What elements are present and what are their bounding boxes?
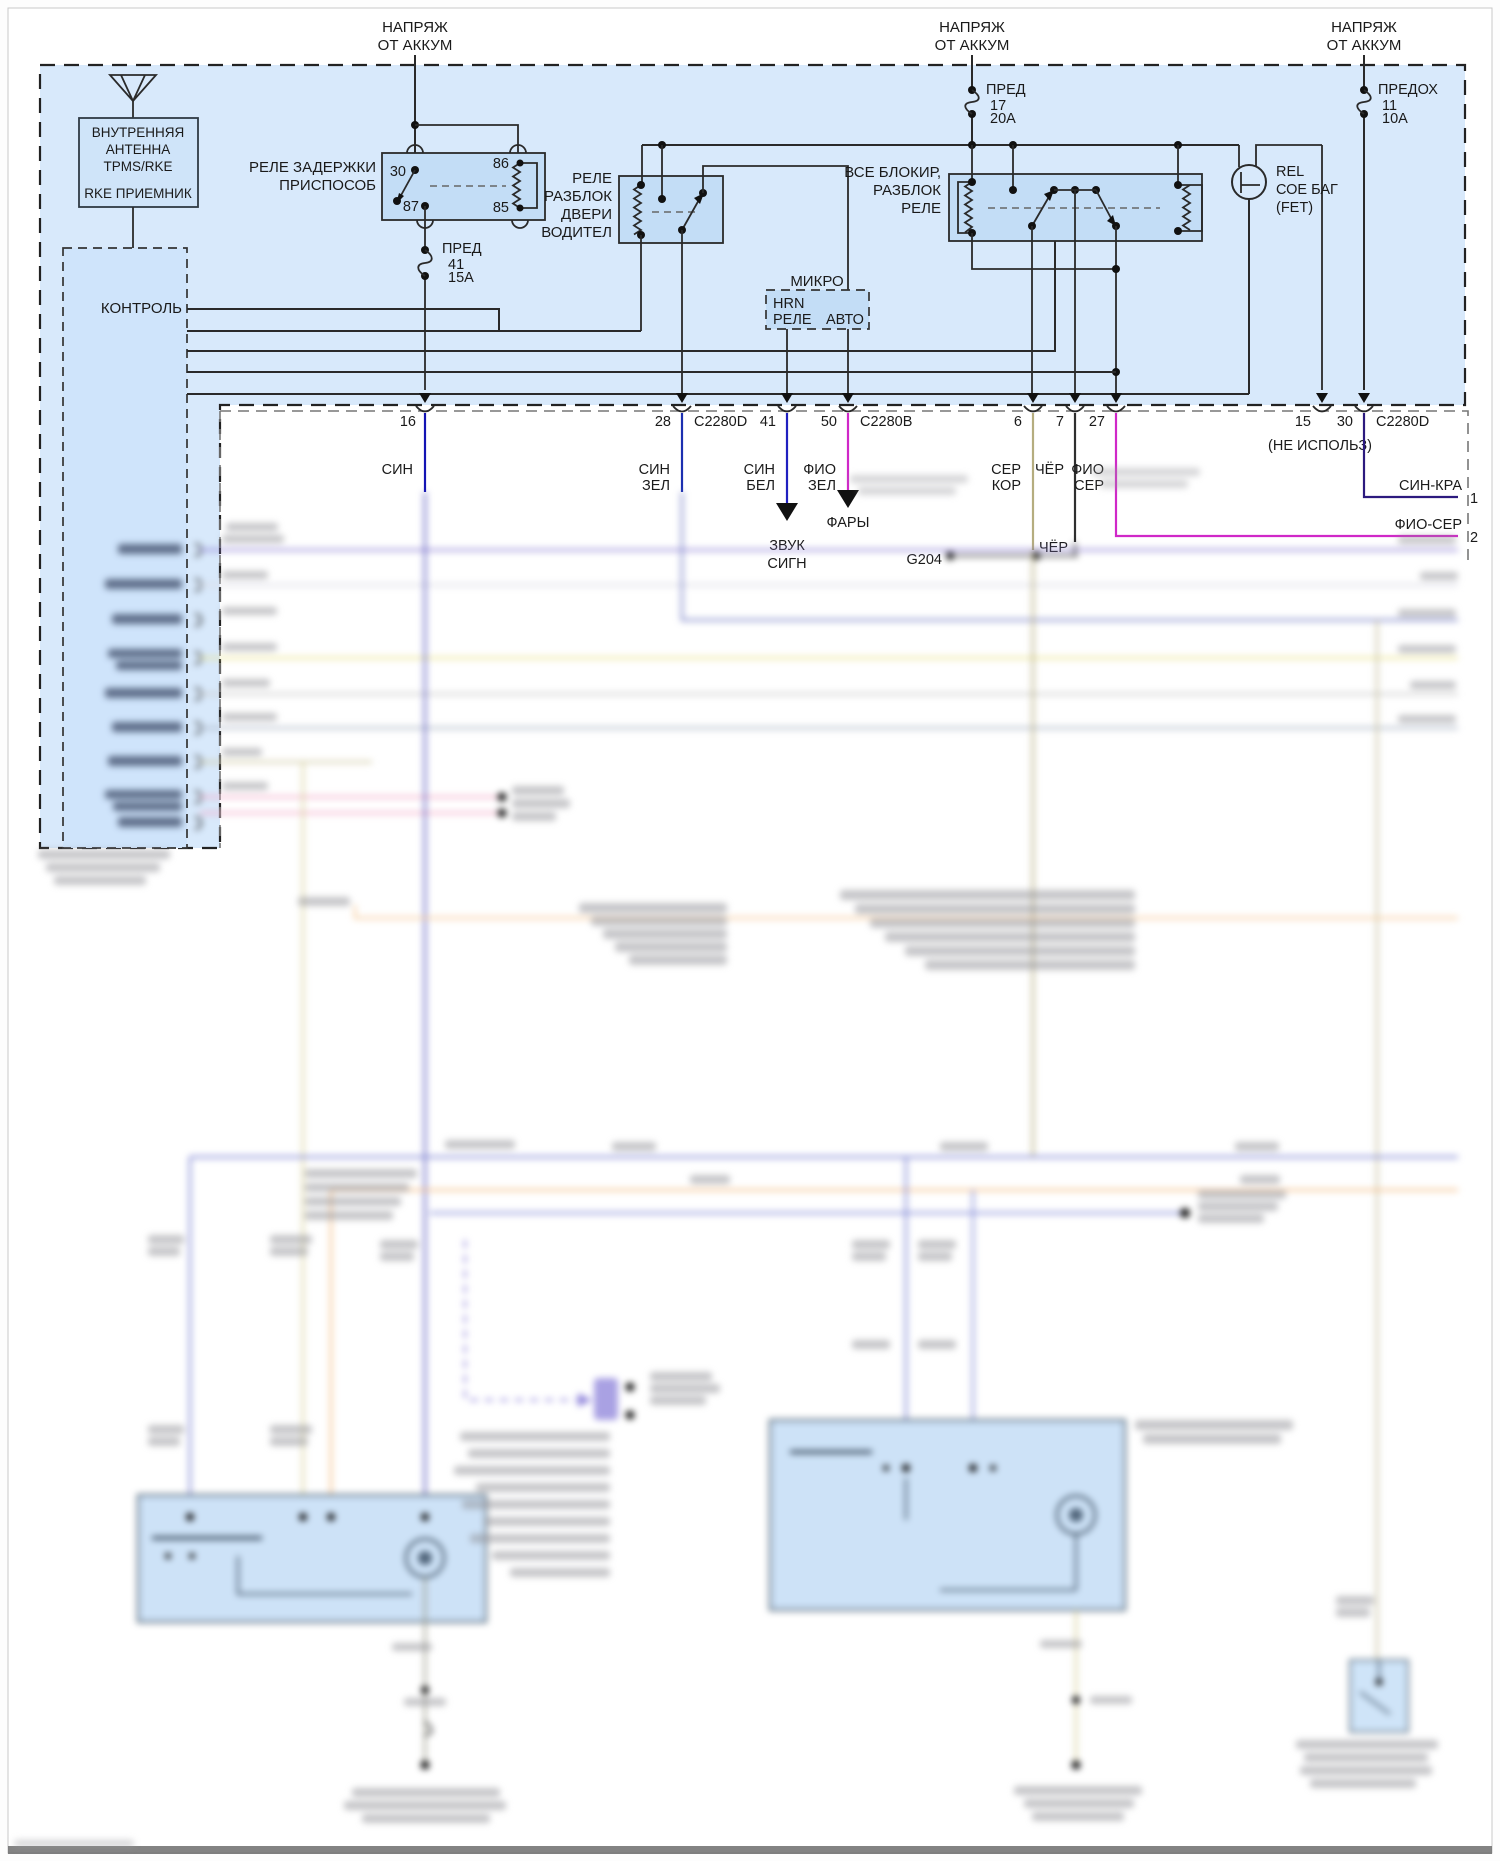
svg-text:ФАРЫ: ФАРЫ [827, 515, 870, 531]
svg-text:15: 15 [1295, 414, 1311, 430]
svg-text:СИН: СИН [744, 462, 775, 478]
diagram-canvas: НАПРЯЖ ОТ АККУМ НАПРЯЖ ОТ АККУМ НАПРЯЖ О… [0, 0, 1500, 1861]
svg-text:ФИО-СЕР: ФИО-СЕР [1395, 517, 1462, 533]
svg-text:СИГН: СИГН [767, 556, 806, 572]
battery-feed-2: НАПРЯЖ ОТ АККУМ [935, 19, 1010, 54]
feed1-line1: НАПРЯЖ [382, 19, 448, 36]
svg-text:(FET): (FET) [1276, 200, 1313, 216]
svg-text:C2280D: C2280D [1376, 414, 1429, 430]
svg-text:REL: REL [1276, 164, 1304, 180]
svg-text:ПРЕДОХ: ПРЕДОХ [1378, 82, 1438, 98]
svg-text:АВТО: АВТО [826, 312, 864, 328]
svg-text:20А: 20А [990, 111, 1016, 127]
svg-text:6: 6 [1014, 414, 1022, 430]
battery-feed-3: НАПРЯЖ ОТ АККУМ [1327, 19, 1402, 54]
svg-text:СИН: СИН [382, 462, 413, 478]
svg-text:ЧЁР: ЧЁР [1035, 461, 1064, 478]
svg-text:РЕЛЕ: РЕЛЕ [901, 200, 941, 217]
svg-text:41: 41 [760, 414, 776, 430]
svg-text:2: 2 [1470, 530, 1478, 546]
svg-text:РЕЛЕ ЗАДЕРЖКИ: РЕЛЕ ЗАДЕРЖКИ [249, 159, 376, 176]
bottom-band [8, 1846, 1492, 1854]
control-label: КОНТРОЛЬ [101, 300, 182, 317]
feed1-line2: ОТ АККУМ [378, 37, 453, 54]
svg-text:НАПРЯЖ: НАПРЯЖ [939, 19, 1005, 36]
svg-text:ЧЁР: ЧЁР [1039, 539, 1068, 556]
svg-text:C2280D: C2280D [694, 414, 747, 430]
svg-text:50: 50 [821, 414, 837, 430]
svg-text:87: 87 [403, 199, 419, 215]
component-box-small [1350, 1660, 1408, 1732]
svg-text:КОР: КОР [992, 478, 1021, 494]
svg-text:ОТ АККУМ: ОТ АККУМ [1327, 37, 1402, 54]
svg-text:НАПРЯЖ: НАПРЯЖ [1331, 19, 1397, 36]
svg-text:ЗЕЛ: ЗЕЛ [642, 478, 670, 494]
svg-text:СОЕ БАГ: СОЕ БАГ [1276, 182, 1338, 198]
svg-text:ФИО: ФИО [803, 462, 836, 478]
not-used-label: (НЕ ИСПОЛЬЗ) [1268, 438, 1372, 454]
svg-text:МИКРО: МИКРО [790, 273, 843, 290]
component-box-left [138, 1495, 486, 1622]
svg-text:ЗВУК: ЗВУК [769, 538, 805, 554]
svg-text:30: 30 [390, 164, 406, 180]
svg-text:СИН-КРА: СИН-КРА [1399, 478, 1462, 494]
svg-text:РАЗБЛОК: РАЗБЛОК [873, 182, 941, 199]
battery-feed-1: НАПРЯЖ ОТ АККУМ [378, 19, 453, 54]
svg-text:СИН: СИН [639, 462, 670, 478]
svg-text:БЕЛ: БЕЛ [746, 478, 775, 494]
svg-text:СЕР: СЕР [991, 462, 1021, 478]
rx-l2: АНТЕННА [106, 142, 171, 157]
component-box-right [770, 1420, 1125, 1610]
svg-text:85: 85 [493, 200, 509, 216]
rx-l3: TPMS/RKE [103, 159, 172, 174]
svg-text:ПРЕД: ПРЕД [442, 241, 482, 257]
svg-text:РЕЛЕ: РЕЛЕ [572, 170, 612, 187]
rx-l1: ВНУТРЕННЯЯ [92, 125, 185, 140]
svg-text:ЗЕЛ: ЗЕЛ [808, 478, 836, 494]
svg-text:ПРЕД: ПРЕД [986, 82, 1026, 98]
wiring-diagram-page: НАПРЯЖ ОТ АККУМ НАПРЯЖ ОТ АККУМ НАПРЯЖ О… [0, 0, 1500, 1861]
svg-text:ДВЕРИ: ДВЕРИ [561, 206, 612, 223]
svg-text:16: 16 [400, 414, 416, 430]
svg-text:7: 7 [1056, 414, 1064, 430]
svg-text:РЕЛЕ: РЕЛЕ [773, 312, 812, 328]
svg-text:28: 28 [655, 414, 671, 430]
svg-text:30: 30 [1337, 414, 1353, 430]
svg-text:РАЗБЛОК: РАЗБЛОК [544, 188, 612, 205]
svg-text:ВОДИТЕЛ: ВОДИТЕЛ [541, 224, 612, 241]
svg-text:C2280B: C2280B [860, 414, 912, 430]
svg-text:СЕР: СЕР [1074, 478, 1104, 494]
svg-text:HRN: HRN [773, 296, 804, 312]
svg-text:10А: 10А [1382, 111, 1408, 127]
svg-text:86: 86 [493, 156, 509, 172]
svg-text:15А: 15А [448, 270, 474, 286]
svg-text:27: 27 [1089, 414, 1105, 430]
svg-text:ПРИСПОСОБ: ПРИСПОСОБ [279, 177, 376, 194]
svg-text:ОТ АККУМ: ОТ АККУМ [935, 37, 1010, 54]
rx-l4: RKE ПРИЕМНИК [84, 186, 192, 201]
svg-text:ВСЕ БЛОКИР,: ВСЕ БЛОКИР, [844, 164, 941, 181]
svg-text:1: 1 [1470, 491, 1478, 507]
svg-text:G204: G204 [907, 552, 942, 568]
